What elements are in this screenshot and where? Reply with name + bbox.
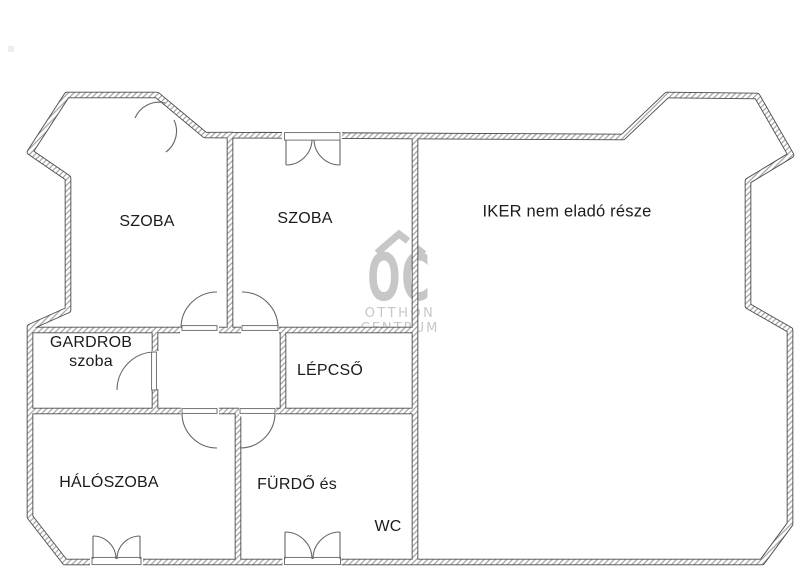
floor-plan: OC OTTHON CENTRUM [0,0,800,568]
room-label-iker: IKER nem eladó része [482,203,651,222]
watermark-logo-text: OC [367,239,431,315]
room-label-gardrob-line2: szoba [50,352,132,371]
door-leaf-szoba-left [182,326,217,331]
watermark-line1: OTTHON [365,306,436,321]
room-label-haloszoba: HÁLÓSZOBA [59,474,159,492]
door-swing-szoba-left [181,292,217,328]
door-leaf-furdo [240,409,275,414]
room-label-szoba-left: SZOBA [119,213,174,231]
door-leaf-haloszoba [182,409,217,414]
room-label-lepcso: LÉPCSŐ [297,362,363,380]
door-swing-furdo [240,413,275,448]
room-label-szoba-middle: SZOBA [277,210,332,228]
scan-artifact-mark [8,46,14,52]
door-swing-szoba-middle [242,292,278,328]
room-label-furdo: FÜRDŐ és [257,476,337,494]
room-label-wc: WC [374,518,401,536]
door-swing-haloszoba [182,413,217,448]
room-label-gardrob-line1: GARDROB [50,333,132,352]
door-leaf-gardrob [152,352,157,390]
window-swing-szoba-middle [286,140,340,165]
window-swing-furdo [285,532,340,559]
door-leaf-szoba-middle [242,326,278,331]
room-label-gardrob: GARDROB szoba [50,333,132,371]
watermark-otthon-centrum: OC OTTHON CENTRUM [361,234,440,336]
window-sill-szoba-middle [285,133,341,141]
